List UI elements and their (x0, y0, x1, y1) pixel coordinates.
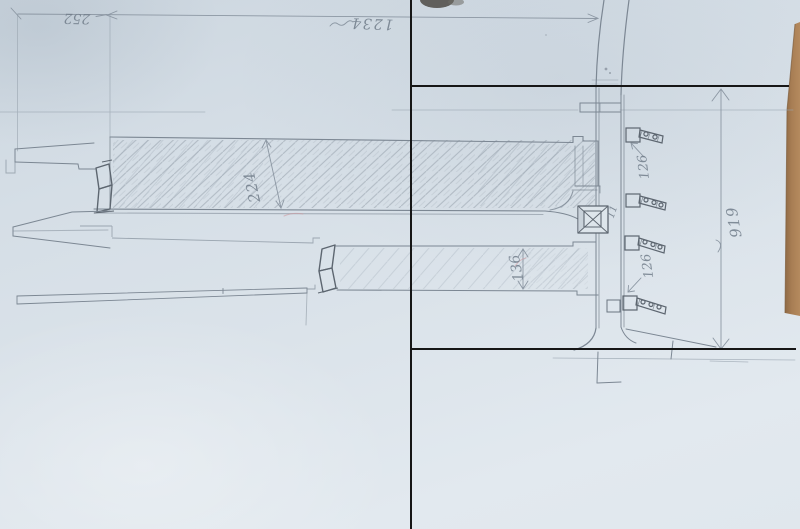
upper-beam-left-flange (6, 143, 95, 173)
pencil-sketch-drawing (0, 0, 800, 529)
dark-smudge (420, 0, 464, 8)
anchor-bracket-3 (625, 236, 665, 253)
dim-919-squiggle (716, 240, 721, 252)
square-x-bearing-marker (578, 206, 608, 233)
lower-left-step-lines (80, 226, 320, 243)
crop-line-vertical (410, 0, 412, 529)
dimension-919 (712, 89, 729, 349)
crop-line-horizontal-lower (411, 348, 796, 350)
anchor-bracket-1 (626, 128, 663, 143)
lower-beam (336, 242, 598, 295)
bottom-strip (17, 285, 315, 325)
anchor-bracket-2 (626, 194, 666, 210)
photographed-pencil-sketch: 252 1234 224 136 126 126 919 11 (0, 0, 800, 529)
upper-beam (94, 137, 598, 220)
pointed-stiffener (13, 211, 110, 248)
joint-symbol-lower (318, 245, 338, 293)
joint-symbol-upper (94, 160, 114, 213)
anchor-bracket-4 (623, 296, 666, 314)
graphite-dots (545, 34, 611, 74)
desk-background-edge (785, 22, 800, 316)
dim-1234-squiggle (330, 21, 353, 26)
crop-line-horizontal-upper (411, 85, 789, 87)
dimension-126-leaders (628, 143, 644, 292)
top-dimension-line (11, 8, 598, 26)
dim-tick-left (11, 8, 21, 19)
